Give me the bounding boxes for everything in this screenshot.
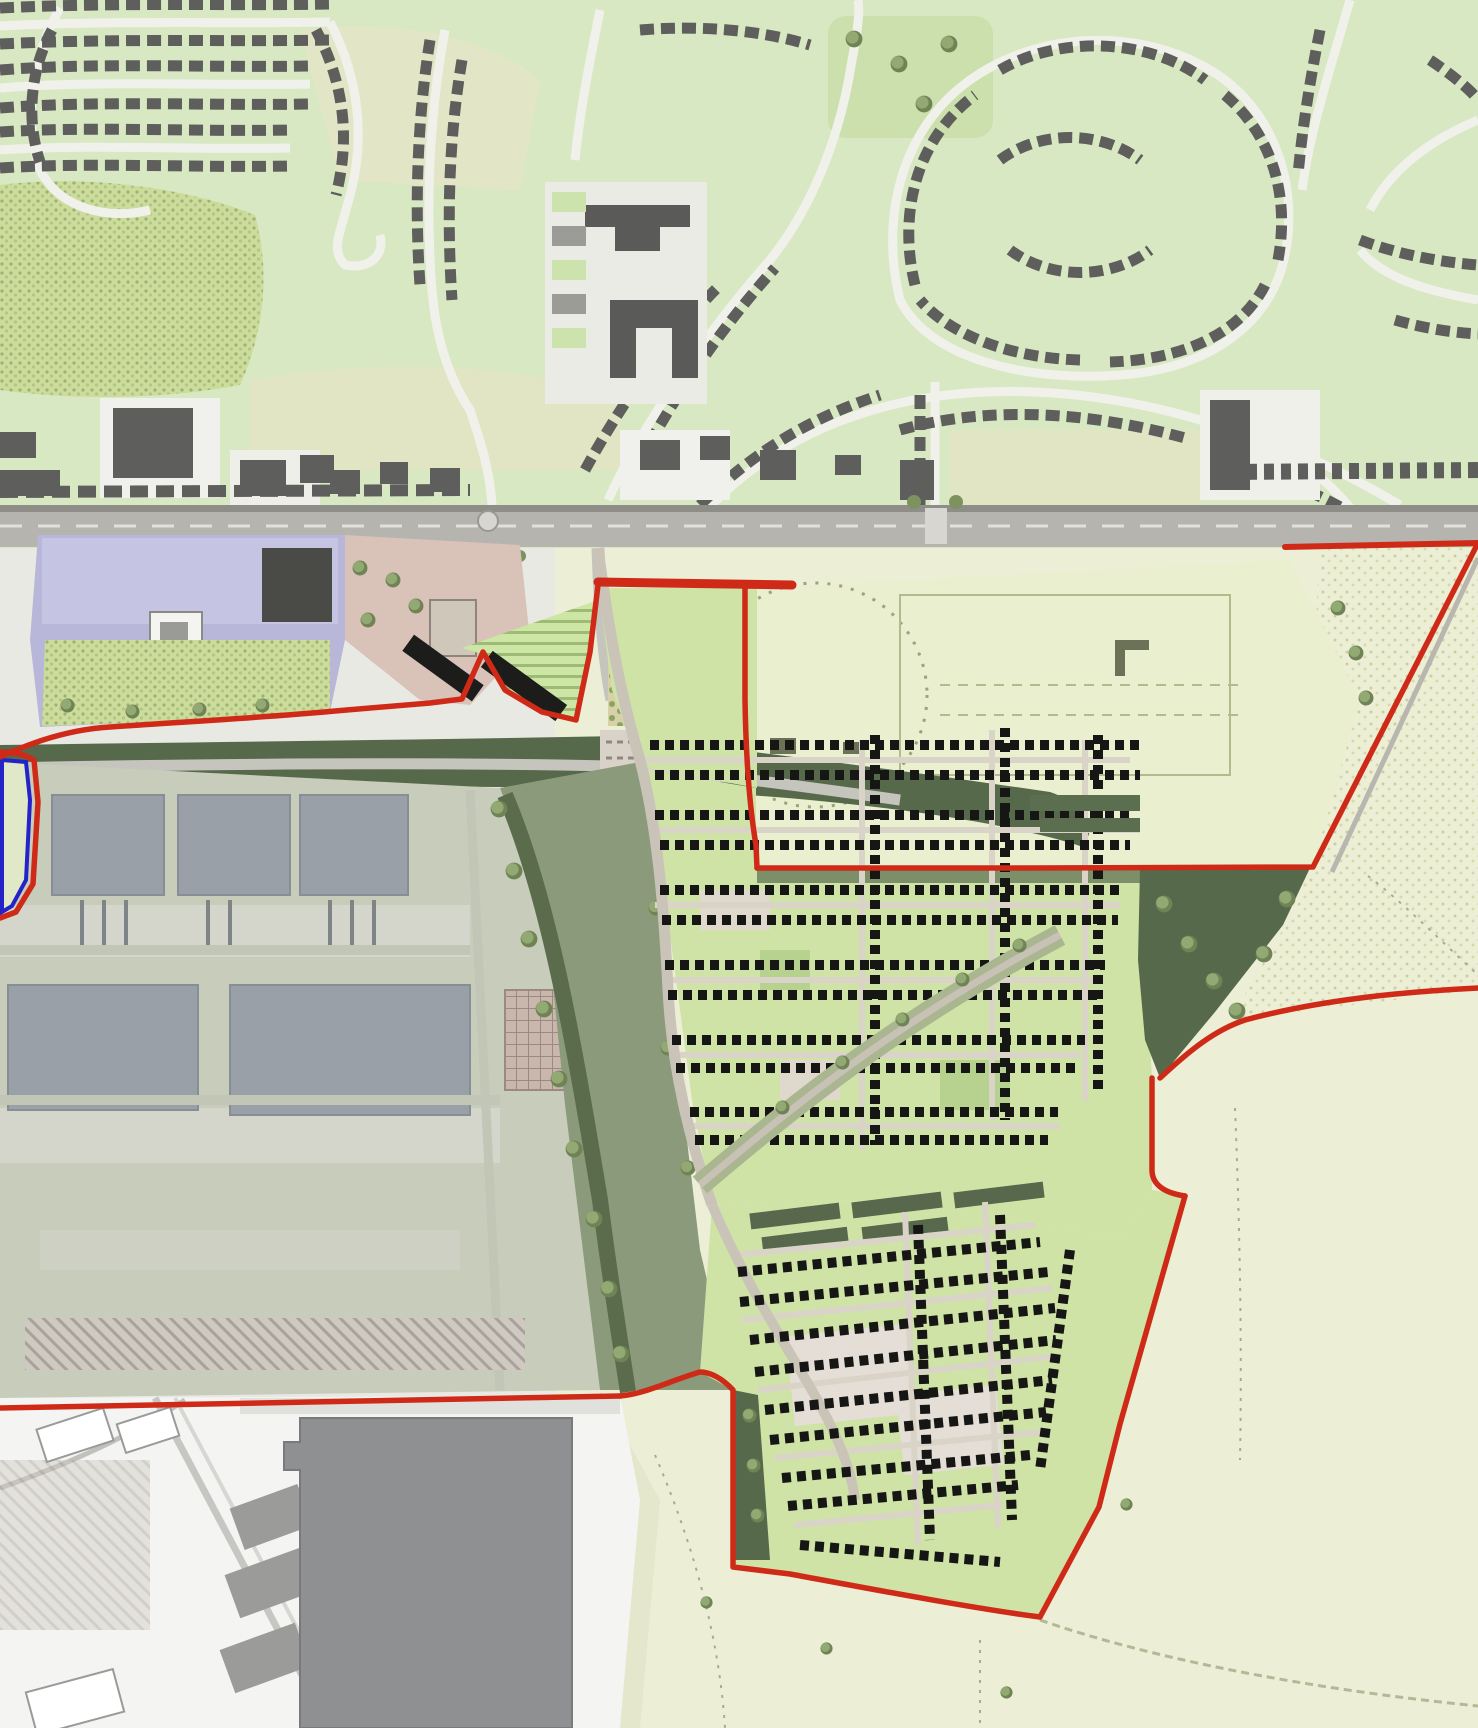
tree (586, 1211, 603, 1228)
tree (907, 495, 921, 509)
main-road-edge (0, 505, 1478, 512)
tree (1120, 1498, 1132, 1510)
red-boundary-road-frontage (598, 582, 792, 585)
building (700, 436, 730, 460)
terrace-roofs (1040, 818, 1140, 832)
tree (916, 96, 933, 113)
warehouse-parking (25, 1318, 525, 1370)
tree (896, 1013, 910, 1027)
mini-roundabout (478, 511, 498, 531)
building (113, 408, 193, 478)
school-court (552, 260, 586, 280)
building (835, 455, 861, 475)
masterplan-site (0, 535, 1478, 1728)
tree (941, 36, 958, 53)
existing-urban-area (0, 0, 1478, 548)
tree (521, 931, 538, 948)
industrial-estate (0, 1396, 640, 1728)
tree (776, 1101, 790, 1115)
tree (1279, 891, 1296, 908)
building (300, 455, 334, 483)
building (900, 460, 934, 500)
hedge-strip (757, 870, 1147, 883)
tree (1331, 601, 1346, 616)
street (0, 147, 290, 150)
school-court (552, 328, 586, 348)
tree (1349, 646, 1364, 661)
parking-apron (40, 1230, 460, 1270)
tree (491, 801, 508, 818)
employment-warehouses (0, 762, 600, 1398)
tree (1156, 896, 1173, 913)
tree (361, 613, 376, 628)
building (380, 462, 408, 484)
warehouse (300, 795, 408, 895)
yard-hatching (0, 1460, 150, 1630)
big-warehouse (284, 1418, 572, 1728)
tree (1359, 691, 1374, 706)
tree (551, 1071, 568, 1088)
tree (1256, 946, 1273, 963)
terrace-row (0, 104, 310, 108)
map-canvas[interactable] (0, 0, 1478, 1728)
tree (126, 705, 140, 719)
tree (1229, 1003, 1246, 1020)
tree (949, 495, 963, 509)
tree (536, 1001, 553, 1018)
map-viewport (0, 0, 1478, 1728)
building (1210, 400, 1250, 490)
tree (256, 699, 270, 713)
pavilion (1115, 640, 1149, 650)
building (760, 450, 796, 480)
tree (751, 1509, 765, 1523)
terrace-row (1230, 470, 1478, 472)
existing-school (545, 182, 707, 404)
crossing (925, 508, 947, 544)
building (640, 440, 680, 470)
warehouse (52, 795, 164, 895)
dark-building (262, 548, 332, 622)
tree (846, 31, 863, 48)
tree (1206, 973, 1223, 990)
school-court (552, 192, 586, 212)
terrace-roofs (1030, 795, 1140, 811)
building (0, 432, 36, 458)
tree (386, 573, 401, 588)
school-court (552, 226, 586, 246)
tree (61, 699, 75, 713)
tree (566, 1141, 583, 1158)
tree (1013, 939, 1027, 953)
warehouse (8, 985, 198, 1110)
tree (193, 703, 207, 717)
tree (836, 1056, 850, 1070)
tree (956, 973, 970, 987)
tree (891, 56, 908, 73)
school-court (552, 294, 586, 314)
tree (409, 599, 424, 614)
tree (743, 1409, 757, 1423)
street (0, 84, 310, 88)
tree (506, 863, 523, 880)
loading-docks (82, 900, 374, 952)
pavilion (1115, 650, 1125, 676)
warehouse (178, 795, 290, 895)
terrace-row (0, 66, 310, 70)
service-apron (0, 1108, 500, 1163)
red-boundary-road-northeast (1285, 543, 1478, 547)
tree (747, 1459, 761, 1473)
tree (613, 1346, 630, 1363)
tree (353, 561, 368, 576)
tree (1181, 936, 1198, 953)
tree (1000, 1686, 1012, 1698)
tree (820, 1642, 832, 1654)
tree (700, 1596, 712, 1608)
tree (601, 1281, 618, 1298)
